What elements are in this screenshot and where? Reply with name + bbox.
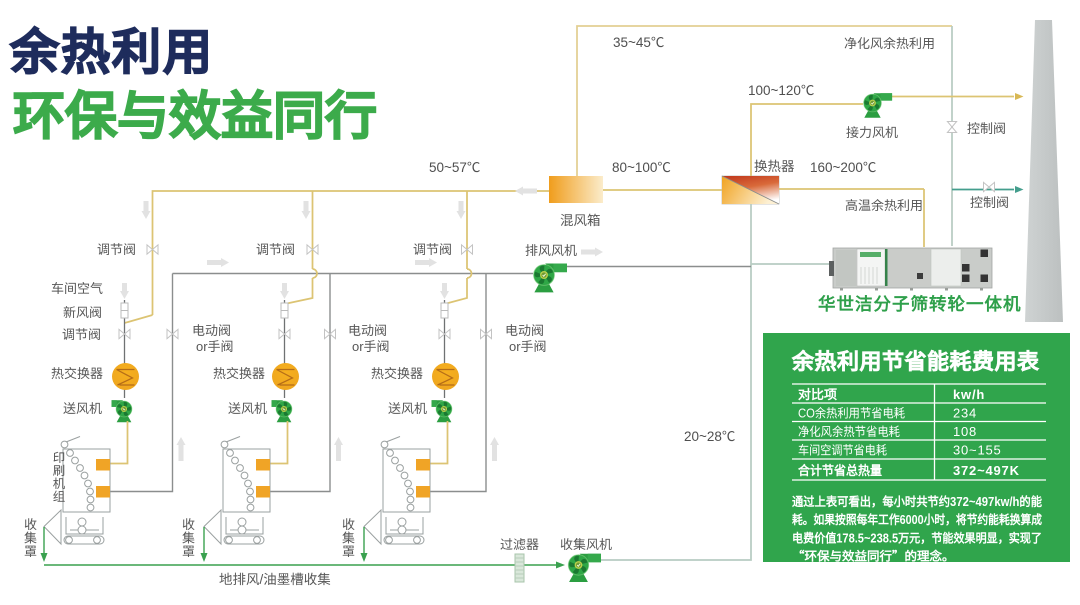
- svg-text:热交换器: 热交换器: [213, 363, 265, 382]
- svg-text:调节阀: 调节阀: [97, 239, 136, 258]
- svg-text:35~45℃: 35~45℃: [613, 31, 664, 51]
- svg-text:高温余热利用: 高温余热利用: [845, 195, 923, 214]
- svg-text:净化风余热利用: 净化风余热利用: [844, 33, 935, 52]
- svg-text:234: 234: [953, 403, 977, 422]
- svg-text:热交换器: 热交换器: [51, 363, 103, 382]
- svg-text:余热利用节省能耗费用表: 余热利用节省能耗费用表: [791, 344, 1040, 376]
- svg-text:CO余热利用节省电耗: CO余热利用节省电耗: [798, 403, 905, 422]
- svg-text:or手阀: or手阀: [509, 336, 547, 355]
- svg-text:“环保与效益同行”的理念。: “环保与效益同行”的理念。: [792, 546, 955, 565]
- svg-text:对比项: 对比项: [798, 384, 837, 403]
- svg-text:送风机: 送风机: [63, 398, 102, 417]
- svg-text:车间空调节省电耗: 车间空调节省电耗: [798, 440, 887, 459]
- svg-text:50~57℃: 50~57℃: [429, 156, 480, 176]
- svg-text:耗。如果按照每年工作6000小时，将节约能耗换算成: 耗。如果按照每年工作6000小时，将节约能耗换算成: [792, 509, 1042, 528]
- svg-text:车间空气: 车间空气: [51, 278, 103, 297]
- svg-text:160~200℃: 160~200℃: [810, 156, 876, 176]
- svg-text:电费价值178.5~238.5万元，节能效果明显，实现了: 电费价值178.5~238.5万元，节能效果明显，实现了: [792, 527, 1042, 546]
- svg-text:华世洁分子筛转轮一体机: 华世洁分子筛转轮一体机: [818, 291, 1022, 316]
- svg-text:80~100℃: 80~100℃: [612, 156, 671, 176]
- svg-text:or手阀: or手阀: [352, 336, 390, 355]
- svg-text:地排风/油墨槽收集: 地排风/油墨槽收集: [219, 568, 331, 588]
- svg-text:新风阀: 新风阀: [63, 302, 102, 321]
- svg-text:20~28℃: 20~28℃: [684, 425, 735, 445]
- svg-text:100~120℃: 100~120℃: [748, 79, 814, 99]
- svg-text:收集罩: 收集罩: [342, 514, 355, 560]
- svg-text:调节阀: 调节阀: [62, 324, 101, 343]
- svg-text:收集罩: 收集罩: [24, 514, 37, 560]
- svg-text:换热器: 换热器: [754, 155, 795, 175]
- svg-text:控制阀: 控制阀: [967, 118, 1006, 137]
- svg-text:控制阀: 控制阀: [970, 192, 1009, 211]
- svg-text:送风机: 送风机: [228, 398, 267, 417]
- svg-text:or手阀: or手阀: [196, 336, 234, 355]
- svg-text:净化风余热节省电耗: 净化风余热节省电耗: [798, 421, 900, 440]
- svg-text:合计节省总热量: 合计节省总热量: [798, 460, 882, 479]
- svg-text:收集风机: 收集风机: [560, 534, 612, 553]
- svg-text:印刷机组: 印刷机组: [53, 447, 66, 505]
- svg-text:调节阀: 调节阀: [413, 239, 452, 258]
- svg-text:收集罩: 收集罩: [182, 514, 195, 560]
- svg-text:kw/h: kw/h: [953, 384, 985, 403]
- svg-text:过滤器: 过滤器: [500, 534, 539, 553]
- svg-text:热交换器: 热交换器: [371, 363, 423, 382]
- svg-text:送风机: 送风机: [388, 398, 427, 417]
- svg-text:通过上表可看出，每小时共节约372~497kw/h的能: 通过上表可看出，每小时共节约372~497kw/h的能: [792, 491, 1042, 510]
- svg-text:108: 108: [953, 421, 977, 440]
- svg-text:混风箱: 混风箱: [560, 209, 601, 229]
- svg-text:调节阀: 调节阀: [256, 239, 295, 258]
- svg-text:30~155: 30~155: [953, 440, 1002, 459]
- svg-text:接力风机: 接力风机: [846, 122, 898, 141]
- svg-text:372~497K: 372~497K: [953, 460, 1020, 479]
- svg-text:排风风机: 排风风机: [525, 240, 577, 259]
